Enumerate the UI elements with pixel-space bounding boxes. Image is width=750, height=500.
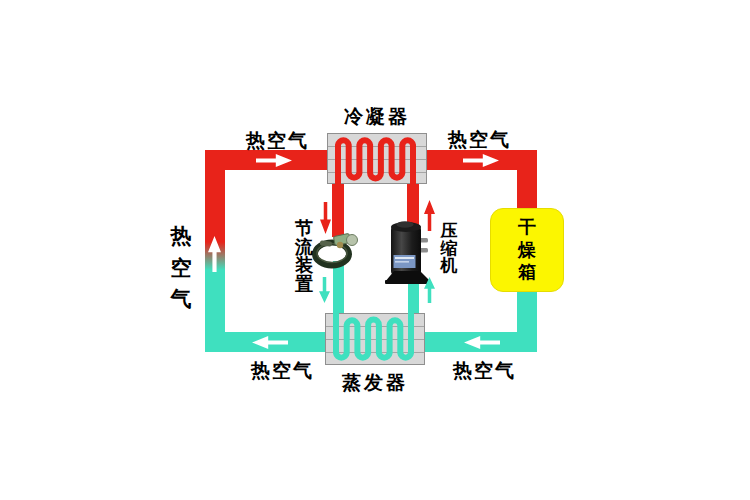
condenser-fin: [328, 159, 426, 160]
heat-pump-drying-diagram: 干燥箱: [0, 0, 750, 500]
condenser-box: [327, 133, 427, 184]
throttle-device-label: 节流装置: [294, 219, 314, 293]
evaporator-fin: [326, 352, 424, 353]
evaporator-fin: [326, 339, 424, 340]
hot-air-label-top-left: 热空气: [246, 128, 309, 154]
compressor-icon: [385, 218, 431, 285]
throttle-device-icon: [306, 228, 362, 272]
condenser-label: 冷凝器: [322, 104, 432, 130]
drying-box-label: 干燥箱: [517, 216, 537, 284]
compressor-label: 压缩机: [440, 222, 458, 275]
drying-box: 干燥箱: [490, 208, 564, 292]
hot-air-label-left: 热空气: [169, 220, 193, 315]
evaporator-box: [325, 313, 425, 365]
evaporator-label: 蒸发器: [320, 370, 430, 396]
evaporator-fin: [326, 326, 424, 327]
hot-air-label-bottom-left: 热空气: [251, 358, 314, 384]
refrigerant-arrow-throttle-to-evaporator-icon: [319, 277, 330, 303]
hot-air-label-bottom-right: 热空气: [453, 358, 516, 384]
condenser-fin: [328, 172, 426, 173]
hot-air-label-top-right: 热空气: [448, 127, 511, 153]
condenser-fin: [328, 146, 426, 147]
